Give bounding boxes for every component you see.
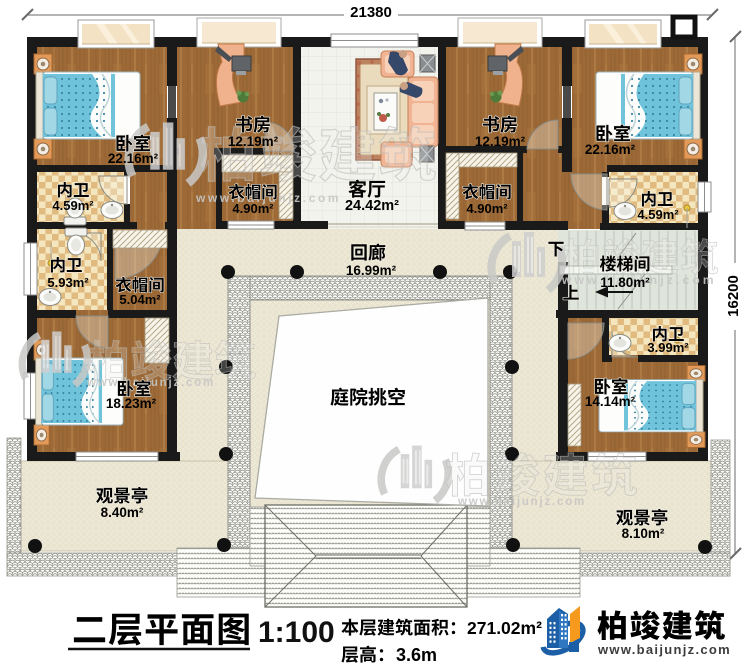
svg-text:8.10m²: 8.10m² bbox=[622, 526, 665, 541]
svg-text:4.59m²: 4.59m² bbox=[637, 207, 679, 222]
svg-text:22.16m²: 22.16m² bbox=[585, 142, 636, 157]
svg-text:18.23m²: 18.23m² bbox=[106, 396, 157, 411]
svg-text:11.80m²: 11.80m² bbox=[600, 275, 650, 290]
svg-text:12.19m²: 12.19m² bbox=[228, 134, 279, 149]
svg-text:16200: 16200 bbox=[725, 275, 742, 317]
svg-text:8.40m²: 8.40m² bbox=[101, 505, 144, 520]
svg-text:21380: 21380 bbox=[350, 4, 392, 21]
svg-text:271.02m²: 271.02m² bbox=[467, 618, 542, 638]
svg-text:3.6m: 3.6m bbox=[396, 645, 437, 665]
svg-text:3.99m²: 3.99m² bbox=[647, 340, 689, 355]
svg-text:24.42m²: 24.42m² bbox=[345, 198, 399, 214]
svg-text:4.90m²: 4.90m² bbox=[232, 201, 274, 216]
svg-text:16.99m²: 16.99m² bbox=[346, 263, 397, 278]
svg-text:www.baijunjz.com: www.baijunjz.com bbox=[597, 642, 731, 657]
svg-text:14.14m²: 14.14m² bbox=[585, 394, 636, 409]
svg-text:5.93m²: 5.93m² bbox=[47, 275, 89, 290]
svg-text:12.19m²: 12.19m² bbox=[475, 134, 526, 149]
svg-text:5.04m²: 5.04m² bbox=[119, 292, 161, 307]
svg-text:22.16m²: 22.16m² bbox=[108, 151, 159, 166]
svg-text:www.baijunjz.com: www.baijunjz.com bbox=[457, 496, 586, 508]
svg-text:4.90m²: 4.90m² bbox=[466, 201, 508, 216]
svg-text:1:100: 1:100 bbox=[258, 616, 335, 649]
svg-text:4.59m²: 4.59m² bbox=[52, 198, 94, 213]
